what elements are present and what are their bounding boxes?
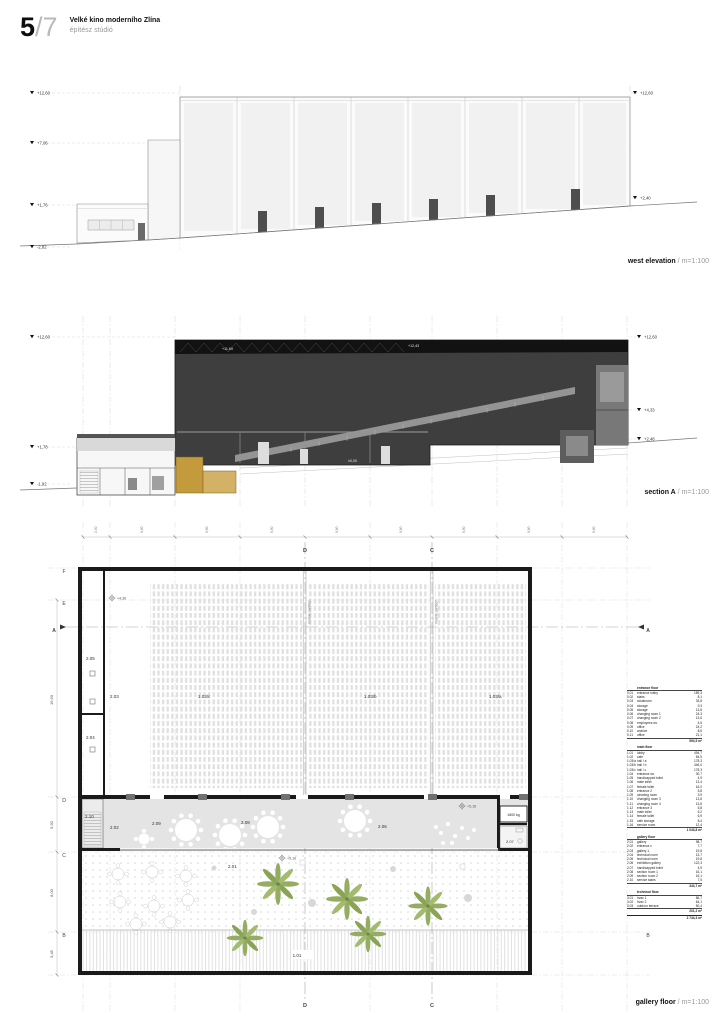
annex-stairs xyxy=(80,471,98,493)
elevation-building xyxy=(77,97,630,252)
foyer xyxy=(82,799,528,852)
schedule-row: 344,7 m² xyxy=(627,883,702,888)
room-schedule-table: entrance floor 0.01 entrance lobby 189,3… xyxy=(627,683,702,920)
room-name: outdoor terrace xyxy=(637,904,688,908)
room-label: 1.03/a xyxy=(489,694,502,699)
room-area: 50,4 xyxy=(688,904,702,908)
level-label: +4,36 xyxy=(117,597,126,601)
section-marker-d-top: D xyxy=(303,548,307,554)
room-name: main floor xyxy=(637,745,688,749)
west-elevation-drawing: +12,60 +7,06 +1,76 -2,82 +12,60 +2,40 xyxy=(0,0,717,300)
section-marker-d-bottom: D xyxy=(303,1003,307,1009)
left-dimension-line: 16,90 5,90 8,00 3,45 xyxy=(49,599,59,977)
room-label: 2.10 xyxy=(85,814,94,819)
room-area: 344,7 m² xyxy=(688,884,702,888)
level-label: +2,48 xyxy=(644,437,655,442)
highlighted-room xyxy=(176,457,203,493)
level-label: +12,60 xyxy=(37,335,51,340)
mobile-partition-label: mobile partition xyxy=(435,600,439,624)
lower-roof-strip xyxy=(82,930,528,972)
grid-letter: C xyxy=(62,853,66,859)
caption-name: gallery floor xyxy=(636,999,676,1006)
level-label: -1,92 xyxy=(37,482,47,487)
west-elevation-caption: west elevation / m=1:100 xyxy=(628,258,709,265)
grid-letter: E xyxy=(62,601,66,607)
level-label: -2,82 xyxy=(37,245,47,250)
room-number: 2.10 xyxy=(627,878,637,882)
section-building xyxy=(77,340,628,495)
annex-door xyxy=(138,223,145,240)
room-name: entrance floor xyxy=(637,686,688,690)
lift-capacity-label: 1600 kg xyxy=(507,813,520,817)
room-number: 1.16 xyxy=(627,823,637,827)
room-label: 2.09 xyxy=(152,821,161,826)
caption-name: section A xyxy=(644,489,675,496)
dim-label: 9,90 xyxy=(140,526,144,533)
dim-label: 9,90 xyxy=(335,526,339,533)
level-label: +12,60 xyxy=(644,335,658,340)
inner-level: +11,69 xyxy=(222,347,233,351)
grid-letter: A xyxy=(646,628,650,634)
caption-scale: / m=1:100 xyxy=(678,999,709,1006)
top-dimension-line: 2,30 9,90 9,90 9,90 9,90 9,90 9,90 9,90 … xyxy=(82,526,629,538)
dim-label: 16,90 xyxy=(49,694,54,705)
level-label: +5,16 xyxy=(287,857,296,861)
dim-label: 3,45 xyxy=(49,949,54,958)
room-label: 2.07 xyxy=(506,839,515,844)
glass-facade xyxy=(120,849,500,850)
dim-label: 9,90 xyxy=(527,526,531,533)
terrace xyxy=(82,851,528,935)
room-name: technical floor xyxy=(637,890,688,894)
level-label: +4,33 xyxy=(644,408,655,413)
level-label: +12,60 xyxy=(37,91,51,96)
room-name: office xyxy=(637,733,688,737)
caption-scale: / m=1:100 xyxy=(678,258,709,265)
room-label: 2.01 xyxy=(228,864,237,869)
inner-level: +12,43 xyxy=(408,344,419,348)
schedule-row: 2 744,3 m² xyxy=(627,915,702,920)
room-number: 0.11 xyxy=(627,733,637,737)
room-label: 2.05 xyxy=(86,656,95,661)
room-label: 2.03 xyxy=(110,694,119,699)
room-area: 201,2 m² xyxy=(688,909,702,913)
room-name: service stairs xyxy=(637,878,688,882)
grid-letter: B xyxy=(62,933,66,939)
roof-structure xyxy=(175,340,628,354)
dim-label: 9,90 xyxy=(205,526,209,533)
level-label: +5,16 xyxy=(467,805,476,809)
dim-label: 9,90 xyxy=(399,526,403,533)
level-label: +7,06 xyxy=(37,141,48,146)
section-marker-c-top: C xyxy=(430,548,434,554)
inner-level: ±0,00 xyxy=(348,459,357,463)
dim-label: 5,90 xyxy=(49,820,54,829)
level-label: +12,60 xyxy=(640,91,654,96)
elevation-stair-block xyxy=(148,140,180,240)
grid-letter: D xyxy=(62,798,66,804)
room-number: 3.03 xyxy=(627,904,637,908)
room-label: 2.06 xyxy=(378,824,387,829)
grid-letter: F xyxy=(62,569,65,575)
room-area: 2 744,3 m² xyxy=(687,916,702,920)
section-marker-c-bottom: C xyxy=(430,1003,434,1009)
mobile-partition-label: mobile partition xyxy=(308,600,312,624)
section-marker-a: A xyxy=(52,628,56,634)
level-label: +2,40 xyxy=(640,196,651,201)
hall-seating xyxy=(150,571,526,795)
room-area: 7,5 xyxy=(688,878,702,882)
highlighted-room-2 xyxy=(203,471,236,493)
room-name: gallery floor xyxy=(637,835,688,839)
section-a-drawing: +11,69 +12,43 ±0,00 +12,60 +1,78 -1,92 +… xyxy=(0,300,717,520)
schedule-row: 201,2 m² xyxy=(627,908,702,913)
room-label: 2.02 xyxy=(110,825,119,830)
room-label: 1.03/b xyxy=(364,694,377,699)
schedule-row: 1.16 service room 12,4 xyxy=(627,823,702,827)
schedule-row: 3.03 outdoor terrace 50,4 xyxy=(627,904,702,908)
room-label: 1.03/c xyxy=(198,694,211,699)
gallery-floor-plan: 2,30 9,90 9,90 9,90 9,90 9,90 9,90 9,90 … xyxy=(0,515,717,1024)
room-label: 1.01 xyxy=(293,953,302,958)
section-caption: section A / m=1:100 xyxy=(644,489,709,496)
room-area: 21,1 xyxy=(688,733,702,737)
level-label: +1,76 xyxy=(37,203,48,208)
room-label: 2.08 xyxy=(241,820,250,825)
dim-label: 9,90 xyxy=(592,526,596,533)
schedule-row: 594,5 m² xyxy=(627,738,702,743)
room-name: service room xyxy=(637,823,688,827)
grid-letter: B xyxy=(646,933,650,939)
room-area: 12,4 xyxy=(688,823,702,827)
room-area: 594,5 m² xyxy=(688,739,702,743)
level-label: +1,78 xyxy=(37,445,48,450)
caption-name: west elevation xyxy=(628,258,676,265)
dim-label: 8,00 xyxy=(49,888,54,897)
schedule-row: 1 043,8 m² xyxy=(627,827,702,832)
dim-label: 9,90 xyxy=(270,526,274,533)
plan-caption: gallery floor / m=1:100 xyxy=(636,999,709,1006)
room-label: 2.04 xyxy=(86,735,95,740)
schedule-row: 0.11 office 21,1 xyxy=(627,733,702,737)
schedule-row: 2.10 service stairs 7,5 xyxy=(627,878,702,882)
dim-label: 2,30 xyxy=(94,526,98,533)
dim-label: 9,90 xyxy=(462,526,466,533)
room-area: 1 043,8 m² xyxy=(687,828,702,832)
caption-scale: / m=1:100 xyxy=(678,489,709,496)
drawing-sheet: 5 /7 Velké kino moderního Zlína építész … xyxy=(0,0,717,1024)
